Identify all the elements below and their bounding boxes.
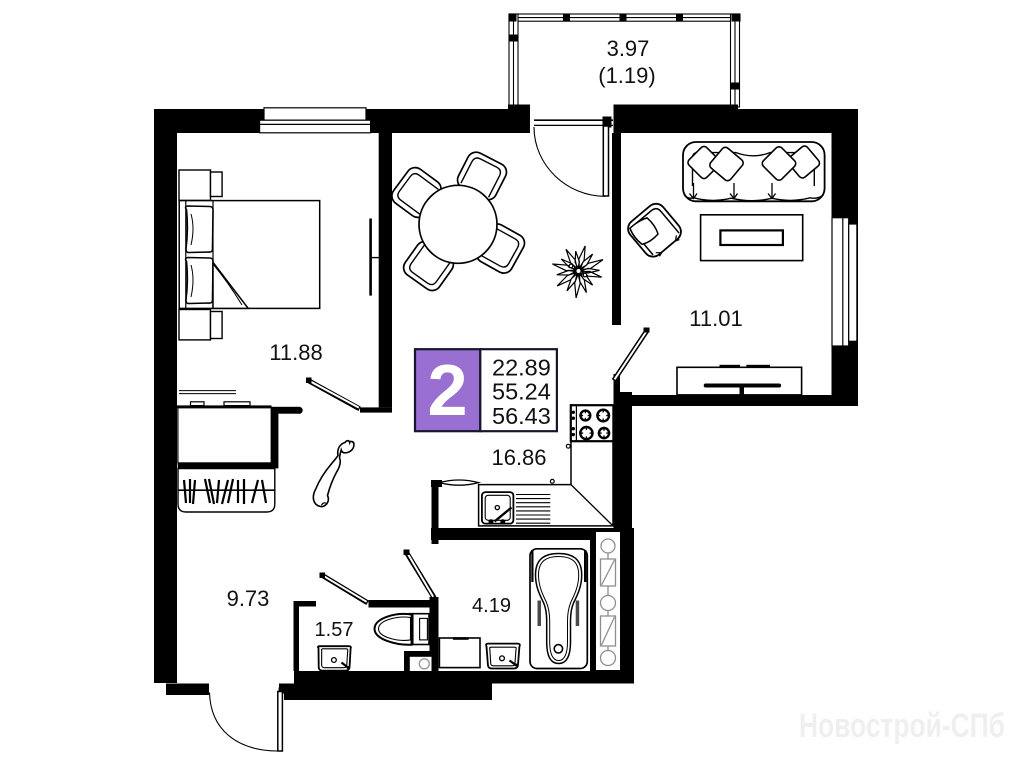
svg-text:Новострой-СПб: Новострой-СПб — [799, 707, 1005, 745]
svg-text:11.88: 11.88 — [269, 340, 322, 365]
svg-text:2: 2 — [427, 351, 467, 431]
svg-text:1.57: 1.57 — [315, 619, 354, 641]
svg-text:9.73: 9.73 — [227, 586, 270, 611]
svg-text:56.43: 56.43 — [492, 403, 551, 429]
svg-text:3.97: 3.97 — [607, 36, 650, 61]
svg-text:22.89: 22.89 — [492, 354, 551, 380]
svg-text:(1.19): (1.19) — [598, 63, 655, 88]
svg-text:55.24: 55.24 — [492, 378, 551, 404]
svg-text:16.86: 16.86 — [491, 445, 546, 470]
svg-text:4.19: 4.19 — [472, 595, 511, 617]
svg-text:11.01: 11.01 — [689, 306, 742, 331]
